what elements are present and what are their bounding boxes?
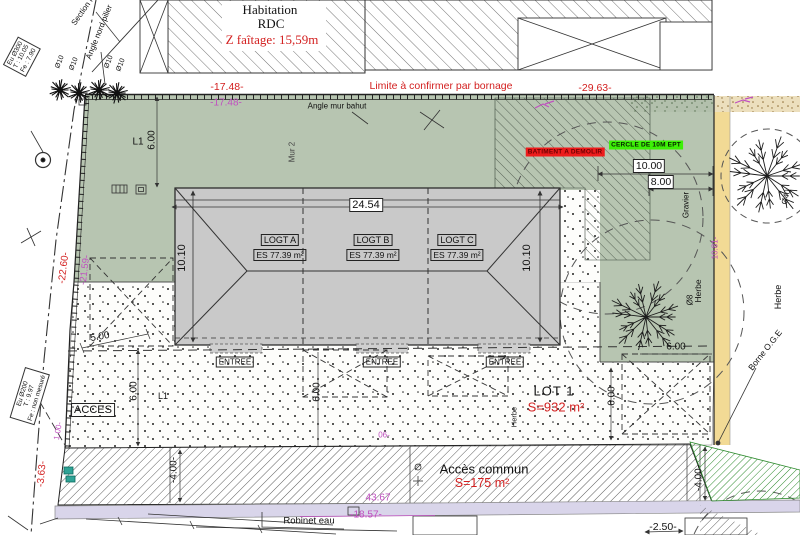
dim-10-00: 10.00	[633, 159, 665, 173]
unit-b-area: ES 77.39 m²	[346, 249, 399, 261]
dim-18-57: -18.57-	[350, 510, 382, 521]
limit-note: Limite à confirmer par bornage	[370, 80, 513, 92]
acces-commun-name: Accès commun	[440, 462, 529, 477]
circle-10m-badge: CERCLE DE 10M EPT	[609, 141, 683, 150]
robinet-eau: Robinet eau	[283, 516, 334, 527]
dim-3-63: -3.63-	[35, 461, 48, 488]
tree-d8-label: Ø8	[686, 295, 695, 306]
dim-6-00-b3: 6.00	[607, 386, 618, 405]
dim-4-00-right: -4.00-	[694, 465, 705, 491]
dim-4-00-left: -4.00-	[169, 457, 180, 483]
unit-c-name: LOGT C	[437, 234, 476, 246]
gravier-label: Gravier	[682, 192, 691, 218]
demolish-badge: BATIMENT A DEMOLIR	[526, 148, 605, 157]
neighbor-floor: RDC	[258, 16, 285, 32]
dim-43-67: 43.67	[365, 493, 390, 504]
unit-c-area: ES 77.39 m²	[430, 249, 483, 261]
lot-area: S=932 m²	[528, 400, 585, 415]
building-roof	[172, 188, 563, 353]
unit-b-name: LOGT B	[354, 234, 393, 246]
dim-17-48-red: -17.48-	[210, 81, 243, 93]
herbe-label-2: Herbe	[773, 285, 783, 310]
mur-2-label: Mur 2	[288, 142, 297, 162]
dim-24-54: 24.54	[349, 198, 383, 212]
dim-2-50: -2.50-	[649, 521, 676, 533]
entree-2: ENTREE	[363, 357, 401, 368]
entree-3: ENTREE	[486, 357, 524, 368]
site-plan: Habitation RDC Z faîtage: 15,59m -17.48-…	[0, 0, 800, 535]
dim-6-00-b1: 6.00	[129, 381, 140, 400]
neighbor-buildings	[92, 0, 712, 73]
gravel-speckle	[714, 96, 800, 112]
dim-06: 06-	[378, 431, 390, 440]
dim-29-63: -29.63-	[578, 82, 611, 94]
acces-commun-area: S=175 m²	[455, 476, 510, 490]
dim-6-00-lawn: 6.00	[147, 130, 158, 149]
boundary-yellow-strip	[714, 112, 730, 445]
dim-10-81: 10.81-	[711, 237, 720, 260]
herbe-label-1: Herbe	[693, 279, 703, 302]
unit-a-name: LOGT A	[261, 234, 299, 246]
herbe-label-3: Herbe	[510, 407, 519, 427]
dim-10-10-right: 10.10	[521, 244, 533, 272]
dim-8-00: 8.00	[648, 175, 674, 189]
entree-1: ENTREE	[216, 357, 254, 368]
dim-6-00-h: 6.00	[666, 342, 685, 353]
dim-10-10-left: 10.10	[176, 244, 188, 272]
l1-label-top: L1	[132, 137, 143, 148]
angle-mur-bahut: Angle mur bahut	[308, 102, 367, 111]
ridge-height: Z faîtage: 15,59m	[226, 32, 319, 48]
lot-name: LOT 1	[534, 384, 575, 399]
l1-label-bottom: L1	[158, 391, 168, 401]
dim-6-00-b2: 6.00	[312, 382, 323, 401]
acces-label: ACCES	[71, 403, 115, 417]
unit-a-area: ES 77.39 m²	[253, 249, 306, 261]
dim-17-48-mag: -17.48-	[210, 98, 242, 109]
